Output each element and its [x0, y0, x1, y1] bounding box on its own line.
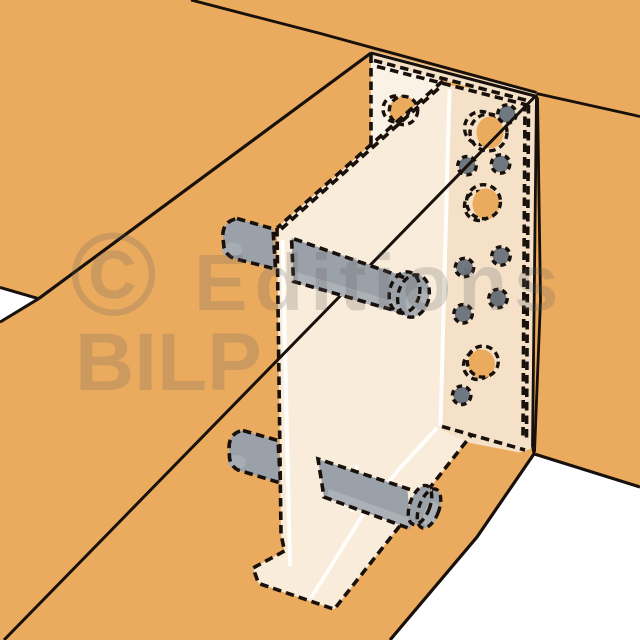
svg-text:Editions: Editions: [194, 238, 566, 327]
svg-text:BILP: BILP: [75, 317, 262, 408]
